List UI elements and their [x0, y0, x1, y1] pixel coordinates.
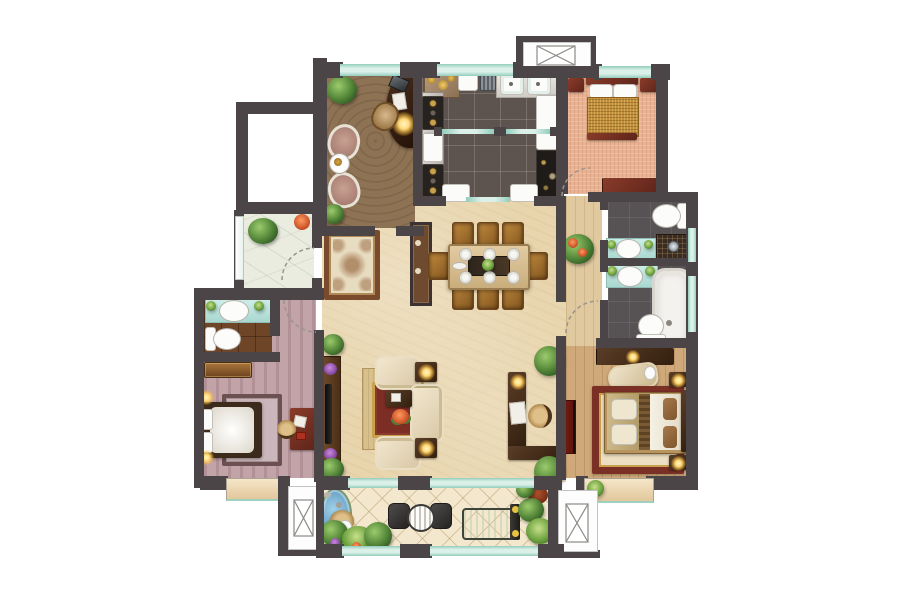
table-lamp	[418, 364, 435, 381]
dining-chair	[428, 252, 450, 280]
window	[688, 276, 696, 332]
west-desk-chair	[277, 420, 296, 439]
master-lamp	[671, 456, 686, 471]
vanity-plant	[607, 266, 617, 276]
wall	[596, 338, 698, 348]
wall	[538, 544, 564, 558]
wall	[400, 544, 432, 558]
wall	[398, 476, 432, 490]
west-bay-window	[226, 478, 282, 501]
kitchen-coffee-set	[438, 80, 448, 90]
kitchen-appliance-white	[458, 74, 478, 91]
place-setting	[459, 248, 472, 261]
shower-head	[668, 241, 679, 252]
patio-palm	[248, 218, 278, 244]
vanity-plant	[206, 301, 216, 311]
wall	[686, 344, 698, 490]
study-tea-set	[334, 158, 342, 166]
washbasin	[219, 300, 249, 322]
wall	[322, 476, 350, 490]
flower-bouquet	[392, 409, 409, 424]
wall	[238, 102, 318, 114]
balcony-glazing	[342, 546, 402, 556]
place-setting	[459, 271, 472, 284]
wall	[314, 330, 324, 482]
master-bed-cushion	[663, 426, 677, 448]
vanity-plant	[254, 301, 264, 311]
master-lamp	[671, 373, 686, 388]
place-setting	[507, 271, 520, 284]
corner-desk-papers	[509, 401, 527, 425]
hallway-floor	[566, 196, 602, 346]
washbasin	[616, 239, 641, 259]
master-bed-pillow	[611, 424, 637, 445]
three-seat-sofa	[410, 384, 444, 442]
balcony-glazing	[430, 546, 540, 556]
treadmill-handle	[512, 530, 519, 537]
wall	[413, 70, 422, 200]
vanity-plant	[644, 240, 653, 249]
wall	[396, 226, 424, 236]
window	[688, 228, 696, 262]
floor-plan	[0, 0, 900, 600]
divider-decor	[415, 268, 421, 274]
wall	[534, 196, 560, 206]
kitchen-drawers	[423, 132, 443, 162]
kitchen-appliance-gray	[480, 75, 496, 91]
place-setting	[483, 271, 496, 284]
master-bed-pillow	[611, 399, 637, 420]
foyer-plant	[324, 204, 344, 224]
table-lamp	[418, 440, 435, 457]
patio-flower	[294, 214, 310, 230]
wall	[236, 102, 248, 214]
kitchen-partition-stub	[434, 127, 442, 136]
kitchen-glass-partition	[442, 129, 494, 134]
ac-platform-southeast	[558, 490, 598, 552]
wall	[314, 288, 324, 298]
wall	[556, 196, 566, 302]
console-flowers	[324, 363, 337, 375]
dining-centerpiece-plant	[482, 259, 494, 271]
study-palm-plant	[327, 76, 357, 104]
master-bed-runner	[639, 394, 650, 450]
bistro-table	[407, 504, 435, 532]
treadmill-deck	[462, 508, 516, 540]
window	[437, 64, 515, 76]
west-dresser	[204, 362, 252, 378]
pond-rock	[336, 502, 342, 508]
bed-footboard	[587, 133, 637, 140]
wall	[194, 288, 324, 300]
master-wardrobe-light	[626, 350, 640, 364]
wall	[534, 476, 562, 490]
wall	[600, 198, 608, 210]
entry-rug	[324, 230, 380, 300]
kitchen-sliding-door-glass	[466, 197, 510, 202]
divider-decor	[415, 240, 421, 246]
kitchen-stove	[422, 96, 444, 130]
wall	[278, 482, 288, 554]
kitchen-glass-partition	[506, 129, 550, 134]
sliding-window	[430, 478, 536, 488]
washbasin	[617, 266, 643, 287]
west-desk-book	[296, 432, 306, 440]
window	[340, 64, 402, 76]
patio-window	[235, 216, 244, 280]
master-chaise-pillow	[644, 366, 656, 380]
wall	[200, 476, 228, 490]
coffee-table-papers	[391, 393, 401, 402]
bed-gold-blanket	[587, 97, 639, 137]
window	[599, 66, 655, 78]
equipment-platform-floor	[248, 114, 316, 204]
kitchen-stove	[422, 164, 444, 198]
wall	[600, 240, 608, 272]
kitchen-sink-drain	[536, 82, 540, 86]
hallway-rose-bloom	[568, 238, 578, 248]
wall	[315, 226, 375, 236]
wall	[236, 202, 322, 214]
living-tv	[325, 384, 332, 444]
toilet-bowl	[213, 328, 241, 350]
wall	[556, 336, 566, 480]
wall	[196, 352, 280, 362]
kitchen-sink-drain	[509, 82, 513, 86]
dining-dish	[452, 262, 467, 270]
wall	[556, 70, 568, 194]
master-bed-cushion	[663, 398, 677, 420]
wall	[656, 68, 668, 202]
wall	[316, 544, 344, 558]
nightstand	[568, 78, 584, 92]
kitchen-partition-stub	[494, 127, 506, 136]
wall	[270, 292, 280, 336]
corner-desk-chair	[528, 404, 552, 428]
corner-desk-lamp	[510, 374, 526, 390]
sliding-window	[348, 478, 400, 488]
hallway-rose-bloom	[578, 248, 587, 257]
wall	[413, 196, 446, 206]
vanity-plant	[607, 240, 616, 249]
toilet-bowl	[652, 204, 681, 228]
wall	[316, 482, 324, 548]
place-setting	[507, 248, 520, 261]
wall	[194, 288, 204, 488]
pond-rock	[324, 492, 331, 498]
bathtub-drain	[666, 320, 672, 326]
wall	[600, 258, 688, 266]
living-plant	[322, 334, 344, 355]
west-bed-duvet	[210, 407, 254, 453]
